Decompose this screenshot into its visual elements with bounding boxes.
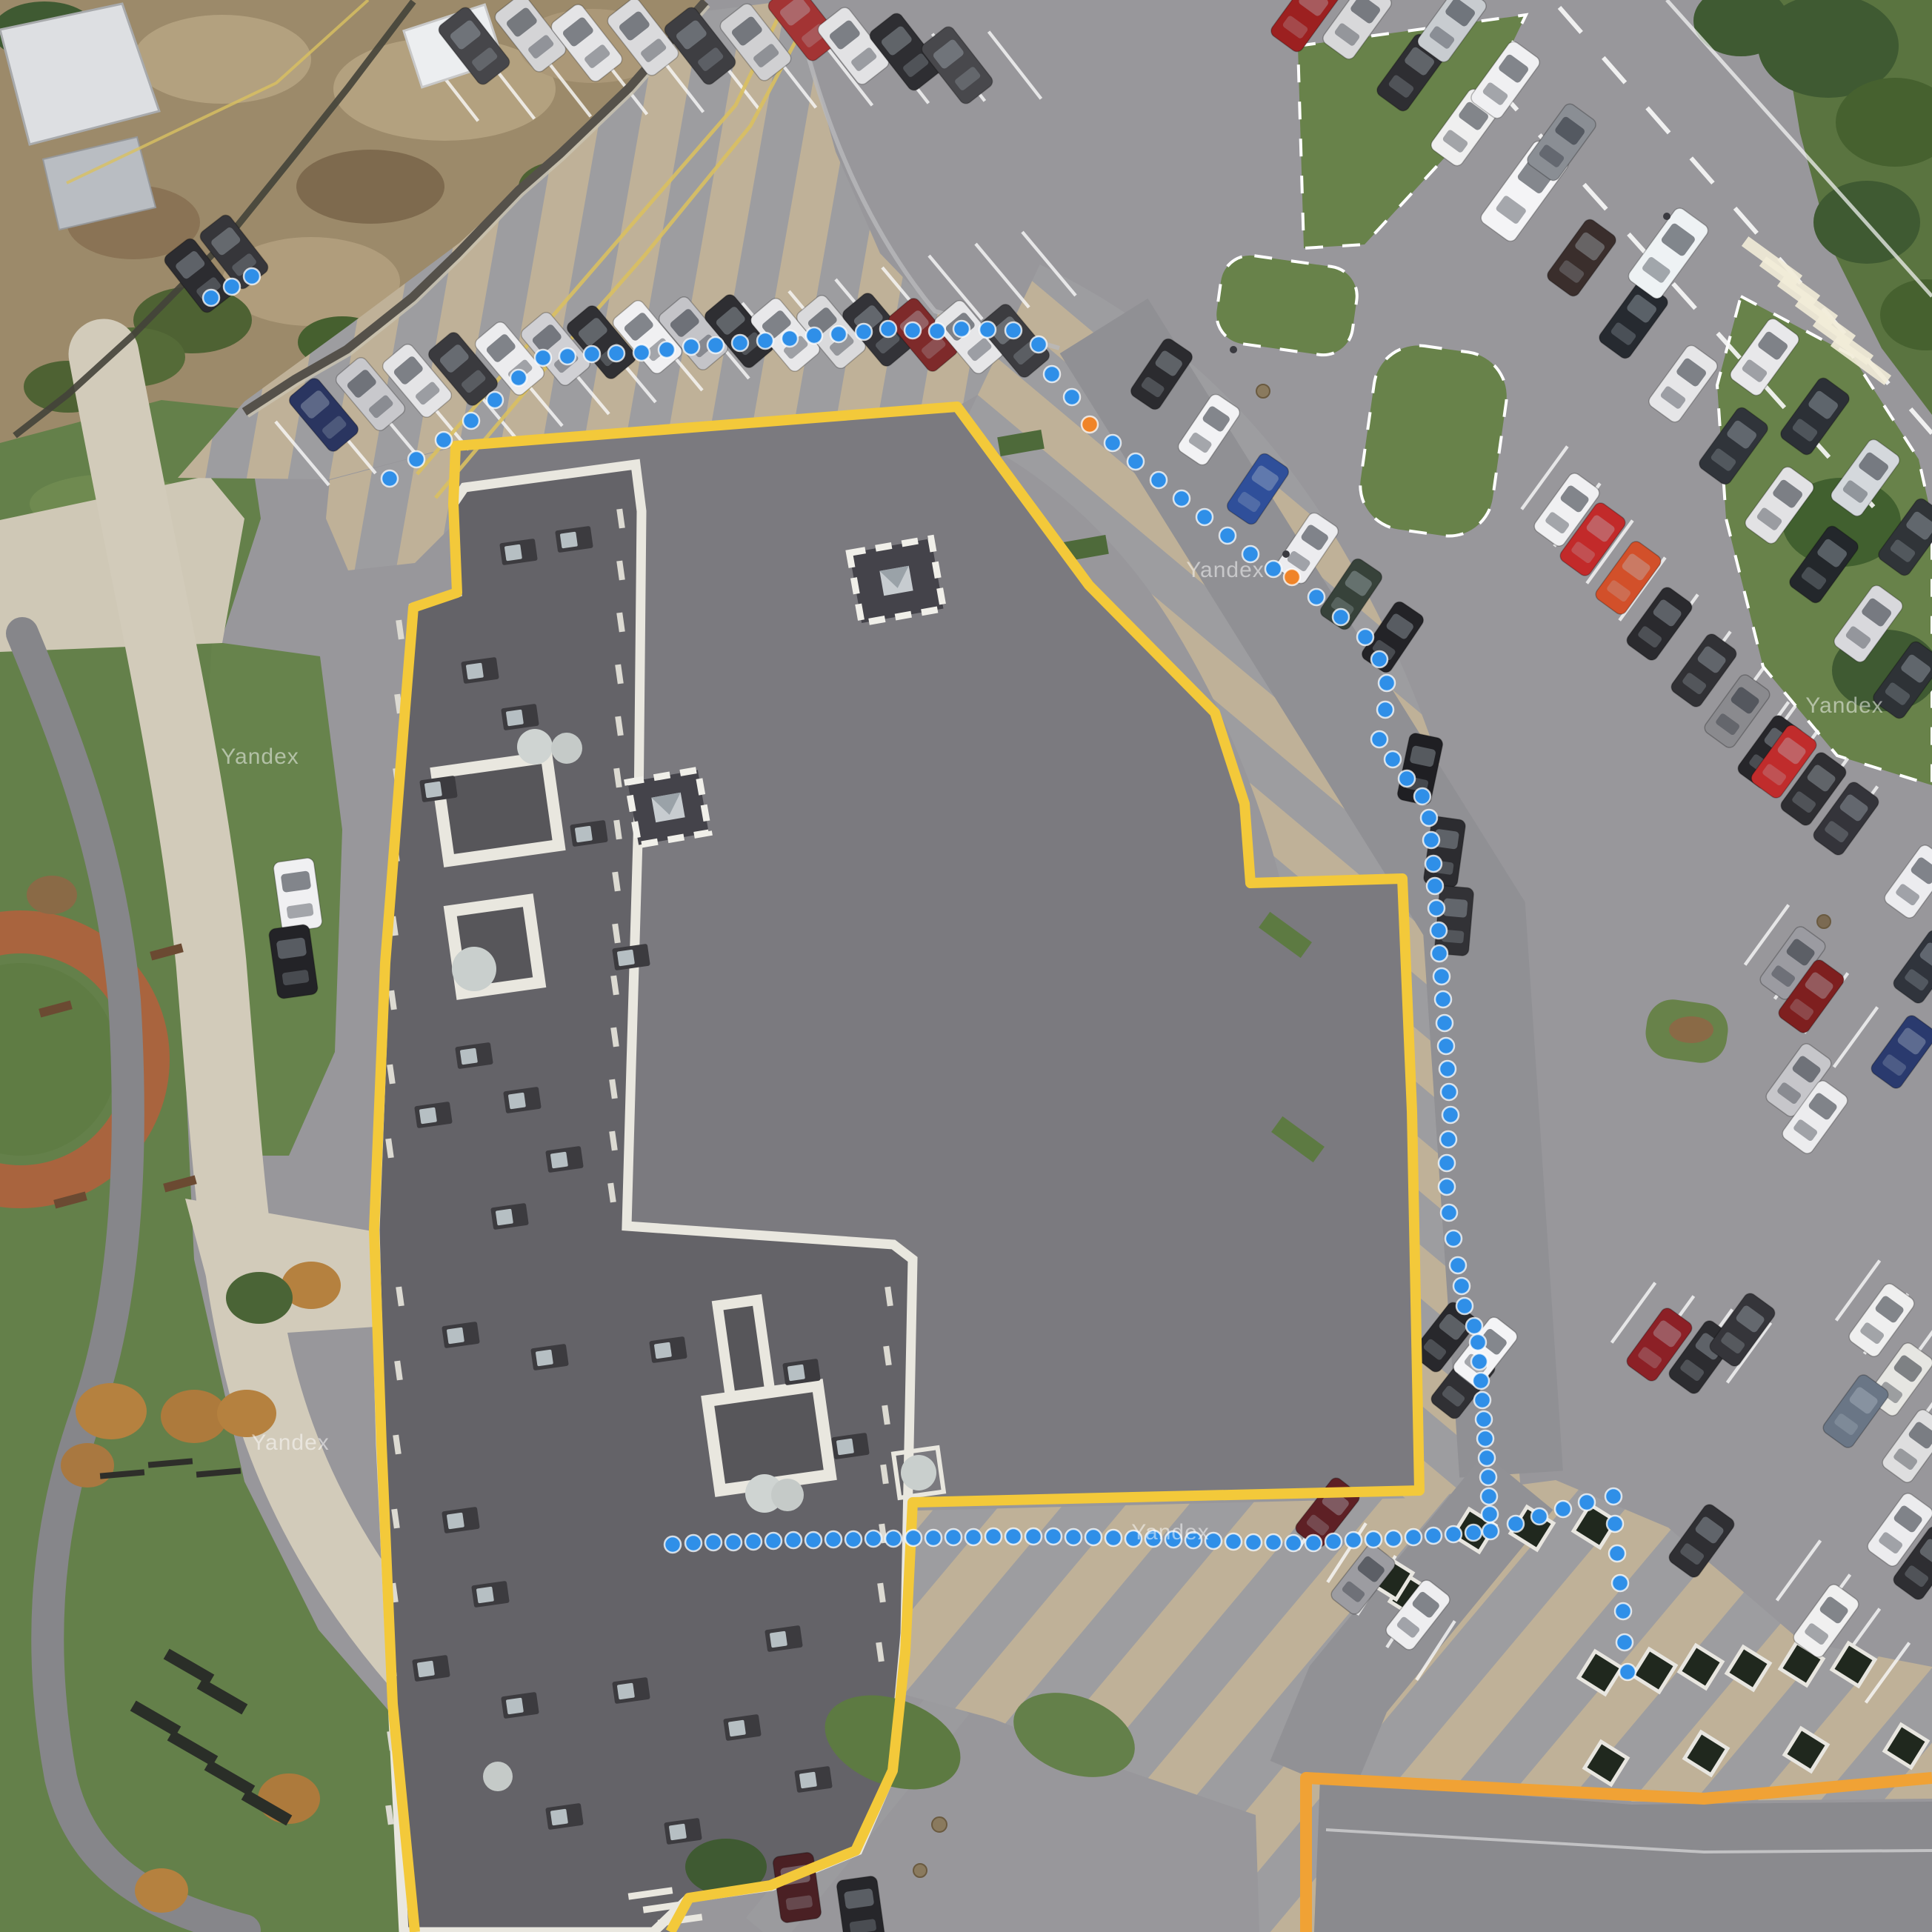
- track-point-dot[interactable]: [1325, 1533, 1342, 1550]
- track-point-dot[interactable]: [1365, 1531, 1382, 1548]
- track-point-dot[interactable]: [805, 1532, 822, 1548]
- track-point-dot[interactable]: [1477, 1430, 1493, 1447]
- track-point-dot[interactable]: [885, 1530, 902, 1547]
- track-point-dot[interactable]: [1414, 788, 1430, 805]
- manhole: [1256, 384, 1270, 398]
- track-point-dot[interactable]: [1607, 1516, 1623, 1532]
- track-point-dot[interactable]: [584, 346, 600, 362]
- track-point-dot[interactable]: [880, 321, 896, 337]
- track-point-dot[interactable]: [925, 1530, 942, 1546]
- track-point-dot[interactable]: [757, 333, 773, 349]
- track-point-dot[interactable]: [1435, 991, 1451, 1007]
- track-point-dot[interactable]: [1482, 1523, 1499, 1539]
- track-point-dot[interactable]: [1579, 1494, 1595, 1510]
- track-point-dot[interactable]: [905, 1530, 922, 1546]
- track-point-dot[interactable]: [1508, 1516, 1524, 1532]
- track-point-dot[interactable]: [1616, 1634, 1633, 1650]
- track-point-dot[interactable]: [825, 1531, 842, 1548]
- yandex-watermark: Yandex: [1131, 1520, 1210, 1545]
- yandex-watermark: Yandex: [1805, 693, 1884, 718]
- track-point-dot[interactable]: [1005, 322, 1022, 339]
- track-point-dot[interactable]: [1245, 1534, 1262, 1550]
- track-point-dot[interactable]: [1385, 1530, 1402, 1547]
- track-point-dot[interactable]: [905, 322, 921, 339]
- track-point-dot[interactable]: [1430, 922, 1447, 939]
- track-point-dot[interactable]: [1045, 1528, 1062, 1545]
- track-point-dot-orange[interactable]: [1284, 569, 1300, 585]
- track-point-dot[interactable]: [436, 432, 452, 448]
- track-point-dot[interactable]: [244, 268, 260, 284]
- track-point-dot[interactable]: [785, 1532, 802, 1548]
- track-point-dot[interactable]: [1085, 1529, 1102, 1545]
- track-point-dot[interactable]: [1357, 629, 1373, 645]
- track-point-dot[interactable]: [1612, 1575, 1628, 1591]
- track-point-dot[interactable]: [953, 321, 970, 337]
- track-point-dot[interactable]: [845, 1531, 862, 1548]
- track-point-dot[interactable]: [1471, 1353, 1488, 1370]
- track-point-dot[interactable]: [1345, 1532, 1362, 1548]
- track-point-dot[interactable]: [1450, 1257, 1466, 1273]
- track-point-dot[interactable]: [1377, 702, 1393, 718]
- track-point-dot[interactable]: [1438, 1038, 1454, 1054]
- track-point-dot[interactable]: [707, 337, 724, 353]
- track-point-dot[interactable]: [1474, 1392, 1490, 1408]
- track-point-dot[interactable]: [1441, 1205, 1457, 1221]
- track-point-dot[interactable]: [1265, 1534, 1282, 1550]
- track-point-dot[interactable]: [1470, 1334, 1486, 1350]
- pedestrian: [1282, 550, 1290, 558]
- aerial-imagery: YandexYandexYandexYandexYandex: [0, 0, 1932, 1932]
- dirt-patch: [296, 150, 444, 224]
- track-point-dot[interactable]: [1439, 1155, 1455, 1171]
- imagery-layers: [0, 0, 1932, 1932]
- track-point-dot[interactable]: [1423, 832, 1439, 848]
- track-point-dot[interactable]: [633, 344, 650, 361]
- roof-hvac: [483, 1762, 513, 1791]
- track-point-dot[interactable]: [608, 345, 624, 362]
- pedestrian: [1230, 346, 1237, 353]
- track-point-dot[interactable]: [463, 413, 479, 429]
- manhole: [913, 1864, 927, 1877]
- track-point-dot[interactable]: [1442, 1107, 1459, 1123]
- track-point-dot[interactable]: [1065, 1529, 1082, 1545]
- yandex-watermark: Yandex: [251, 1430, 330, 1455]
- track-point-dot[interactable]: [408, 451, 424, 467]
- track-point-dot[interactable]: [1431, 945, 1448, 962]
- track-point-dot[interactable]: [382, 470, 398, 487]
- track-point-dot[interactable]: [1265, 561, 1282, 577]
- track-point-dot[interactable]: [1425, 1528, 1442, 1544]
- track-point-dot[interactable]: [1440, 1131, 1456, 1147]
- track-point-dot[interactable]: [1385, 751, 1401, 767]
- track-point-dot[interactable]: [865, 1530, 882, 1547]
- track-point-dot[interactable]: [1605, 1488, 1622, 1505]
- track-point-dot[interactable]: [487, 392, 503, 408]
- track-point-dot[interactable]: [985, 1528, 1002, 1545]
- track-point-dot[interactable]: [1615, 1603, 1631, 1619]
- track-point-dot[interactable]: [1445, 1230, 1462, 1247]
- track-point-dot[interactable]: [1005, 1528, 1022, 1545]
- track-point-dot[interactable]: [1439, 1061, 1456, 1077]
- track-point-dot[interactable]: [203, 290, 219, 306]
- track-point-dot[interactable]: [1150, 472, 1167, 488]
- track-point-dot[interactable]: [1441, 1084, 1457, 1100]
- pedestrian: [1663, 213, 1670, 220]
- track-point-dot[interactable]: [1456, 1298, 1473, 1314]
- plaza-kiosk: [850, 539, 944, 623]
- courtyard-ring: [718, 1300, 770, 1396]
- track-point-dot[interactable]: [1044, 366, 1060, 382]
- track-point-dot[interactable]: [765, 1533, 782, 1549]
- track-point-dot[interactable]: [1127, 453, 1144, 470]
- track-point-dot[interactable]: [1482, 1506, 1498, 1522]
- roof-hvac: [517, 729, 553, 765]
- track-point-dot[interactable]: [1433, 968, 1450, 985]
- park-bush: [226, 1272, 293, 1324]
- plaza-kiosk: [627, 770, 708, 845]
- track-point-dot[interactable]: [1473, 1373, 1489, 1389]
- track-point-dot[interactable]: [1333, 609, 1349, 625]
- track-point-dot[interactable]: [1453, 1278, 1470, 1294]
- track-point-dot[interactable]: [1436, 1015, 1453, 1031]
- track-point-dot[interactable]: [782, 330, 798, 347]
- roof-hvac: [901, 1455, 936, 1490]
- park-tree-brown: [27, 876, 77, 914]
- track-point-dot[interactable]: [1379, 675, 1395, 691]
- roof-hvac: [551, 733, 582, 764]
- yandex-watermark: Yandex: [221, 745, 299, 769]
- track-point-dot[interactable]: [1030, 336, 1047, 353]
- track-point-dot[interactable]: [1466, 1318, 1482, 1334]
- track-point-dot[interactable]: [830, 326, 847, 342]
- track-point-dot[interactable]: [1305, 1535, 1322, 1551]
- track-point-dot[interactable]: [1476, 1411, 1492, 1428]
- roof-hvac: [452, 947, 496, 991]
- dirt-patch: [133, 15, 311, 104]
- track-point-dot[interactable]: [979, 322, 996, 338]
- track-point-dot[interactable]: [732, 335, 748, 351]
- courtyard-ring: [436, 757, 559, 861]
- track-point-dot[interactable]: [510, 370, 527, 386]
- track-point-dot[interactable]: [1105, 1530, 1122, 1546]
- track-point-dot[interactable]: [745, 1533, 762, 1550]
- track-point-dot[interactable]: [559, 348, 576, 364]
- track-point-dot[interactable]: [929, 323, 945, 339]
- track-point-dot[interactable]: [965, 1529, 982, 1545]
- track-point-dot[interactable]: [659, 342, 675, 358]
- track-point-dot[interactable]: [1479, 1450, 1495, 1466]
- track-point-dot[interactable]: [1196, 509, 1213, 525]
- track-point-dot[interactable]: [1445, 1526, 1462, 1542]
- track-point-dot[interactable]: [705, 1534, 722, 1550]
- track-point-dot[interactable]: [1173, 490, 1190, 507]
- track-point-dot[interactable]: [1465, 1525, 1482, 1541]
- track-point-dot[interactable]: [683, 339, 699, 355]
- roof-hvac: [771, 1479, 804, 1511]
- track-point-dot[interactable]: [1285, 1535, 1302, 1551]
- track-point-dot[interactable]: [856, 324, 872, 340]
- park-tree-orange: [135, 1868, 188, 1913]
- track-point-dot[interactable]: [1105, 435, 1121, 451]
- track-point-dot-orange[interactable]: [1082, 416, 1098, 433]
- track-point-dot[interactable]: [725, 1534, 742, 1550]
- track-point-dot[interactable]: [1308, 589, 1325, 605]
- yandex-watermark: Yandex: [1186, 558, 1265, 582]
- track-point-dot[interactable]: [1225, 1533, 1242, 1550]
- track-point-dot[interactable]: [1421, 810, 1437, 826]
- track-point-dot[interactable]: [224, 279, 240, 295]
- track-point-dot[interactable]: [1425, 856, 1442, 872]
- track-point-dot[interactable]: [806, 327, 822, 344]
- track-point-dot[interactable]: [1405, 1529, 1422, 1545]
- track-point-dot[interactable]: [1371, 731, 1388, 747]
- track-point-dot[interactable]: [1480, 1469, 1496, 1485]
- track-point-dot[interactable]: [1427, 878, 1443, 894]
- track-point-dot[interactable]: [1609, 1545, 1625, 1562]
- track-point-dot[interactable]: [1399, 770, 1415, 787]
- track-point-dot[interactable]: [1481, 1488, 1497, 1505]
- park-tree-orange: [61, 1443, 114, 1488]
- satellite-map-canvas[interactable]: YandexYandexYandexYandexYandex: [0, 0, 1932, 1932]
- track-point-dot[interactable]: [664, 1536, 681, 1553]
- track-point-dot[interactable]: [685, 1535, 702, 1551]
- track-point-dot[interactable]: [1428, 900, 1445, 916]
- track-point-dot[interactable]: [945, 1529, 962, 1545]
- track-point-dot[interactable]: [1025, 1528, 1042, 1545]
- track-point-dot[interactable]: [1555, 1501, 1571, 1517]
- cars-west-pair: [268, 857, 323, 999]
- manhole: [1817, 915, 1831, 928]
- track-point-dot[interactable]: [1064, 389, 1080, 405]
- grass-brown-patch: [1669, 1016, 1713, 1043]
- track-point-dot[interactable]: [1619, 1664, 1636, 1680]
- park-tree-orange: [76, 1383, 147, 1439]
- track-point-dot[interactable]: [1219, 527, 1236, 544]
- manhole: [932, 1817, 947, 1832]
- track-point-dot[interactable]: [1439, 1179, 1455, 1195]
- track-point-dot[interactable]: [1371, 651, 1388, 667]
- track-point-dot[interactable]: [1531, 1508, 1548, 1525]
- track-point-dot[interactable]: [535, 350, 551, 366]
